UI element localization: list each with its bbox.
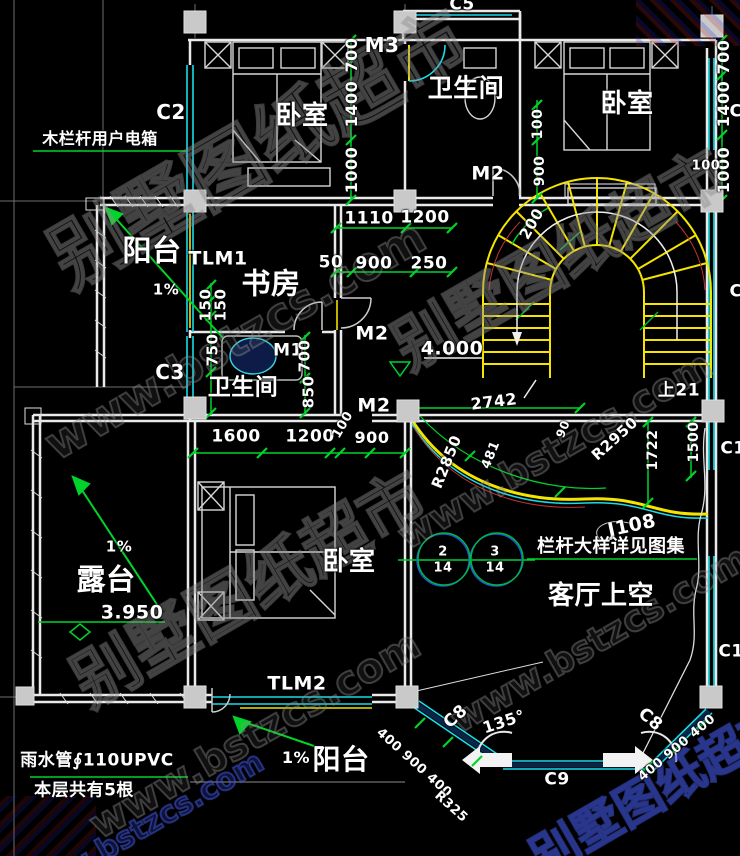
room-bathroom-2: 卫生间 — [208, 377, 279, 400]
note-rainpipe-2: 本层共有5根 — [34, 783, 134, 800]
dim-1200-b: 1200 — [285, 429, 334, 446]
room-living-void: 客厅上空 — [548, 583, 654, 609]
dim-150-b: 150 — [214, 289, 229, 322]
window-code-c8-left: C8 — [441, 702, 471, 732]
dim-900-a: 900 — [356, 256, 393, 273]
cad-floorplan-canvas: 别墅图纸超市www.bstzcs.com别墅图纸超市www.bstzcs.com… — [0, 0, 740, 856]
note-railing: 栏杆大样详见图集 — [537, 538, 685, 556]
room-bedroom-top-right: 卧室 — [600, 91, 653, 117]
window-code-c9: C9 — [544, 772, 569, 789]
room-bedroom-bottom: 卧室 — [322, 549, 375, 575]
room-bathroom-top: 卫生间 — [428, 76, 505, 101]
detail-bubble-2-num: 3 — [490, 546, 500, 559]
dim-700-a: 700 — [344, 38, 360, 73]
dim-250: 250 — [411, 256, 448, 273]
dim-1400-b: 1400 — [716, 81, 732, 128]
dim-1400-a: 1400 — [344, 81, 360, 128]
window-code-c-right-mid: C — [730, 284, 740, 301]
room-balcony-bottom: 阳台 — [312, 746, 369, 774]
window-code-c5: C5 — [449, 0, 474, 14]
door-code-tlm2: TLM2 — [267, 675, 326, 694]
detail-bubble-1-den: 14 — [433, 562, 452, 575]
detail-bubble-2-den: 14 — [485, 562, 504, 575]
door-code-m3: M3 — [365, 35, 400, 55]
room-study: 书房 — [241, 270, 300, 299]
note-top-left: 木栏杆用户电箱 — [42, 131, 158, 147]
door-code-m2-a: M2 — [471, 165, 504, 184]
note-rainpipe-1: 雨水管∮110UPVC — [20, 753, 173, 770]
dim-1200-a: 1200 — [400, 210, 449, 227]
door-code-m2-c: M2 — [357, 397, 390, 416]
dim-750: 750 — [206, 334, 221, 367]
room-bedroom-top-left: 卧室 — [275, 103, 328, 129]
door-code-tlm1: TLM1 — [188, 250, 247, 269]
elevation-4000: 4.000 — [421, 340, 484, 359]
room-terrace: 露台 — [76, 566, 135, 595]
dim-2742: 2742 — [470, 391, 518, 413]
dim-1000-a: 1000 — [344, 147, 360, 194]
dim-700-b: 700 — [716, 40, 732, 75]
door-code-m2-b: M2 — [355, 325, 388, 344]
dim-200-stair: 200 — [517, 206, 546, 242]
angle-135: 135° — [481, 708, 527, 737]
stair-up-note: 上21 — [658, 383, 700, 400]
dim-r325: R325 — [432, 789, 470, 825]
dim-1722: 1722 — [646, 430, 660, 471]
dim-481: 481 — [480, 439, 503, 470]
dim-50: 50 — [319, 255, 344, 272]
dim-r2850: R2850 — [430, 433, 465, 490]
room-balcony-upper: 阳台 — [122, 237, 181, 266]
dim-700-m1: 700 — [298, 340, 313, 373]
dim-100-b: 100 — [330, 409, 356, 440]
dim-1110: 1110 — [344, 211, 393, 228]
elevation-3950: 3.950 — [101, 604, 164, 623]
window-code-c3: C3 — [155, 362, 185, 382]
dim-100-right: 100 — [692, 160, 721, 173]
window-code-c1-right-b: C1 — [718, 644, 740, 661]
window-code-c8-right: C8 — [635, 705, 665, 734]
window-code-c2: C2 — [156, 102, 186, 122]
dim-900-b: 900 — [355, 430, 390, 446]
detail-bubble-1-num: 2 — [438, 546, 448, 559]
dim-900-mid: 900 — [533, 156, 547, 187]
slope-upper-balcony: 1% — [153, 283, 179, 298]
dim-r2950: R2950 — [589, 415, 641, 463]
slope-terrace: 1% — [106, 540, 132, 555]
dim-1500: 1500 — [687, 422, 701, 463]
window-code-c1-right-a: C1 — [720, 441, 740, 458]
annotation-labels-layer: 卧室卫生间卧室阳台书房卫生间露台卧室客厅上空阳台C2C3C5M3M2M2M2M1… — [0, 0, 740, 856]
dim-1600: 1600 — [211, 429, 260, 446]
dim-90: 90 — [554, 419, 572, 440]
slope-bottom-balcony: 1% — [282, 750, 310, 766]
dim-850: 850 — [302, 376, 317, 409]
dim-100-mid: 100 — [531, 109, 545, 140]
